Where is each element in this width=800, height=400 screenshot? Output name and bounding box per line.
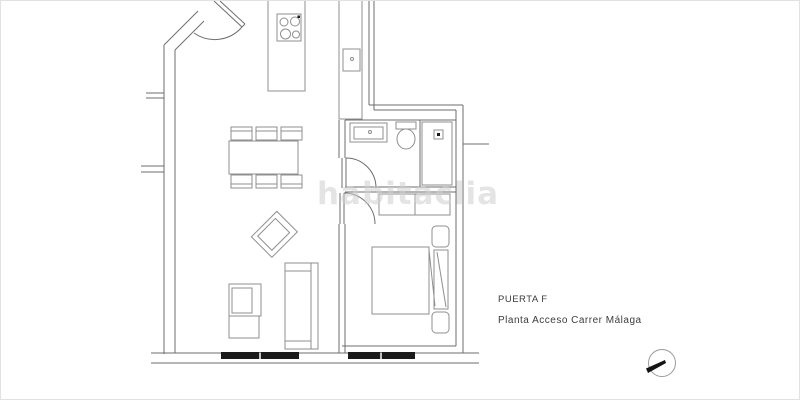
living-room-window (221, 352, 299, 359)
kitchen-sink-icon (343, 49, 360, 71)
floor-plan-page: habitaclia PUERTA F Planta Acceso Carrer… (0, 0, 800, 400)
sofa (285, 263, 318, 349)
bedroom-window (348, 352, 415, 359)
floor-label: Planta Acceso Carrer Málaga (498, 315, 642, 326)
chair (256, 127, 277, 140)
bedroom (340, 193, 450, 333)
pillow (432, 226, 449, 247)
bed (372, 226, 449, 333)
kitchen-counter (339, 1, 362, 119)
entrance-door (194, 1, 245, 40)
toilet-icon (396, 122, 416, 149)
compass-icon (646, 350, 676, 377)
unit-label: PUERTA F (498, 294, 548, 305)
bathroom-sink-icon (350, 123, 387, 142)
watermark-text: habitaclia (317, 176, 499, 212)
pillow (432, 312, 449, 333)
floor-plan-drawing: habitaclia PUERTA F Planta Acceso Carrer… (1, 1, 800, 400)
armchair (251, 211, 297, 257)
interior-walls (339, 120, 456, 353)
chair (231, 127, 252, 140)
dining-table-set (229, 127, 302, 188)
kitchen-island (268, 1, 305, 91)
chair (256, 175, 277, 188)
stove-icon (277, 14, 301, 41)
shower-drain-icon (434, 130, 443, 139)
dining-table (229, 141, 298, 174)
chair (231, 175, 252, 188)
chair (281, 175, 302, 188)
tv-unit (229, 284, 261, 338)
chair (281, 127, 302, 140)
